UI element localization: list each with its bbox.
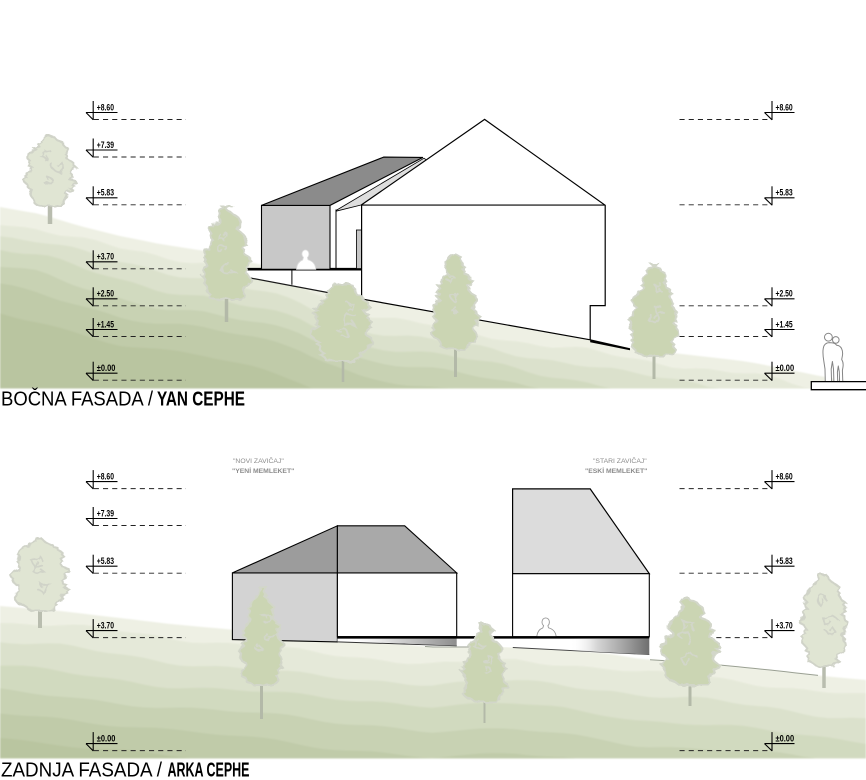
svg-text:+5.83: +5.83: [97, 556, 114, 566]
svg-text:+8.60: +8.60: [776, 102, 793, 112]
svg-text:+1.45: +1.45: [97, 319, 114, 329]
svg-text:+1.45: +1.45: [776, 319, 793, 329]
svg-text:ZADNJA FASADA /: ZADNJA FASADA /: [1, 759, 162, 780]
svg-text:"STARI ZAVIČAJ": "STARI ZAVIČAJ": [593, 456, 647, 465]
svg-text:+8.60: +8.60: [97, 102, 114, 112]
svg-text:"ESKİ MEMLEKET": "ESKİ MEMLEKET": [585, 467, 647, 475]
svg-text:+8.60: +8.60: [776, 471, 793, 481]
svg-text:+2.50: +2.50: [97, 289, 114, 299]
svg-text:±0.00: ±0.00: [776, 733, 795, 743]
svg-text:YAN CEPHE: YAN CEPHE: [157, 388, 245, 411]
svg-text:±0.00: ±0.00: [776, 363, 795, 373]
svg-text:"YENİ MEMLEKET": "YENİ MEMLEKET": [232, 467, 294, 475]
svg-text:+5.83: +5.83: [776, 188, 793, 198]
svg-text:+3.70: +3.70: [776, 620, 793, 630]
svg-text:+5.83: +5.83: [776, 556, 793, 566]
svg-text:+7.39: +7.39: [97, 508, 114, 518]
svg-text:"NOVI ZAVIČAJ": "NOVI ZAVIČAJ": [233, 456, 284, 465]
svg-text:+7.39: +7.39: [97, 140, 114, 150]
svg-text:±0.00: ±0.00: [97, 733, 116, 743]
svg-text:ARKA CEPHE: ARKA CEPHE: [168, 759, 250, 780]
svg-text:+5.83: +5.83: [97, 188, 114, 198]
svg-text:+2.50: +2.50: [776, 289, 793, 299]
svg-text:±0.00: ±0.00: [97, 363, 116, 373]
svg-text:BOČNA FASADA /: BOČNA FASADA /: [1, 388, 153, 411]
svg-text:+8.60: +8.60: [97, 471, 114, 481]
svg-text:+3.70: +3.70: [97, 620, 114, 630]
svg-text:+3.70: +3.70: [97, 252, 114, 262]
